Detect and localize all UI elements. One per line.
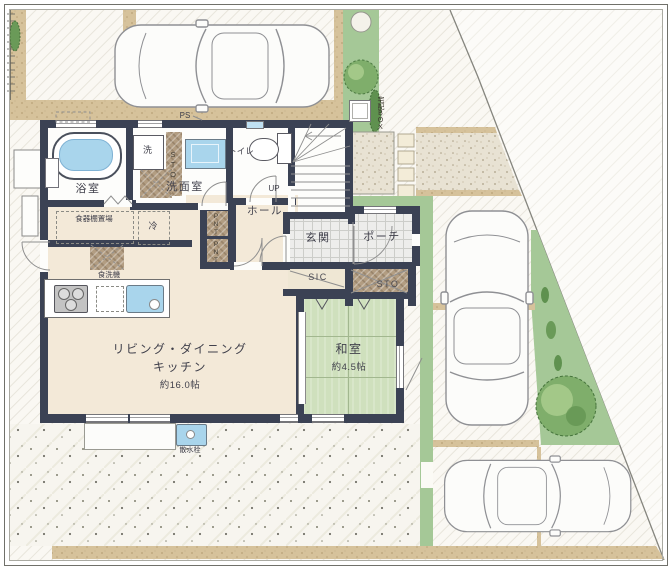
dishwasher-box (96, 286, 124, 312)
bath-window (56, 120, 96, 128)
wall-bath-washroom (126, 124, 133, 204)
entry-storage-label: STO (368, 279, 408, 289)
delivery-box (349, 100, 371, 122)
car-bottom-right (445, 456, 631, 536)
porch-window (364, 206, 396, 214)
ldk-label: リビング・ダイニング (95, 343, 265, 357)
burner (58, 288, 70, 300)
bath-label: 浴室 (56, 183, 120, 196)
washitsu-sliding-door (298, 312, 306, 404)
fridge-label: 冷 (138, 221, 168, 231)
toilet-label: トイレ (226, 147, 256, 157)
wall-sic-sto (345, 262, 353, 306)
washitsu-label: 和室 (318, 343, 380, 357)
terrace-deck (84, 423, 176, 450)
burner (72, 288, 84, 300)
ldk-kitchen-label: キッチン (95, 361, 265, 375)
wall-exterior-bottom (40, 414, 306, 423)
sic-label: SIC (298, 272, 338, 282)
garden-ground (10, 424, 420, 546)
tree-right (536, 376, 596, 436)
ldk-terrace-window-1 (86, 414, 128, 423)
porch-label: ポーチ (358, 231, 406, 244)
pipe-space-label: PS (174, 111, 196, 120)
washroom-window (138, 120, 162, 128)
pantry-lower-label: PNT (212, 241, 219, 263)
hall-ldk-door-gap (234, 262, 262, 270)
wall-washroom-toilet (226, 120, 233, 208)
washroom-storage-label: STO (169, 138, 177, 192)
dishwasher-label: 食洗機 (86, 271, 132, 280)
shrub-top-left (10, 21, 20, 51)
entry-hall-door-gap (283, 234, 290, 262)
dish-shelf-label: 食器棚置場 (58, 215, 130, 224)
delivery-box-label: 宅配BOX (377, 90, 384, 136)
washer-label: 洗 (133, 145, 162, 155)
pantry-upper-label: PNT (212, 213, 219, 235)
car-top-left (115, 20, 329, 112)
wall-stairs-right (345, 120, 353, 216)
washitsu-south-window (312, 414, 344, 423)
water-tap-drain (186, 430, 195, 439)
toilet-window (246, 121, 264, 129)
kitchen-sink (126, 285, 164, 313)
hall-label: ホール (236, 205, 294, 217)
car-right (441, 211, 533, 425)
bathtub-water (59, 139, 113, 171)
porch-side-gap (412, 234, 420, 246)
washroom-label: 洗面室 (146, 181, 224, 194)
ldk-size-label: 約16.0帖 (95, 381, 265, 392)
wall-sto-right (408, 262, 416, 306)
tatami-line (303, 377, 396, 378)
entry-label: 玄関 (298, 232, 338, 245)
washitsu-east-window (396, 346, 404, 388)
tatami-line (303, 336, 396, 337)
ldk-small-window (280, 414, 298, 423)
toilet-door-gap (246, 198, 272, 205)
burner (65, 299, 77, 311)
sink-drain (149, 299, 160, 310)
wall-below-stairs (288, 212, 352, 219)
washitsu-size-label: 約4.5帖 (314, 363, 384, 374)
ldk-terrace-window-2 (130, 414, 170, 423)
up-label: UP (264, 184, 284, 193)
service-door-gap (40, 240, 48, 272)
wall-washitsu-north (296, 292, 408, 299)
bath-door-gap (104, 200, 132, 207)
floor-plan: 浴室 洗面室 トイレ ホール UP 玄関 ポーチ SIC STO STO PNT… (0, 0, 672, 570)
toilet-tank (277, 133, 292, 164)
wall-pantry-right (228, 206, 236, 264)
water-tap-label: 散水栓 (162, 447, 218, 455)
kitchen-cabinet (90, 244, 124, 270)
approach-path (346, 127, 522, 198)
wall-front-door-stub (348, 212, 355, 224)
vanity-basin (191, 144, 219, 163)
sidewalk (52, 546, 664, 559)
washroom-door-gap (198, 203, 228, 210)
